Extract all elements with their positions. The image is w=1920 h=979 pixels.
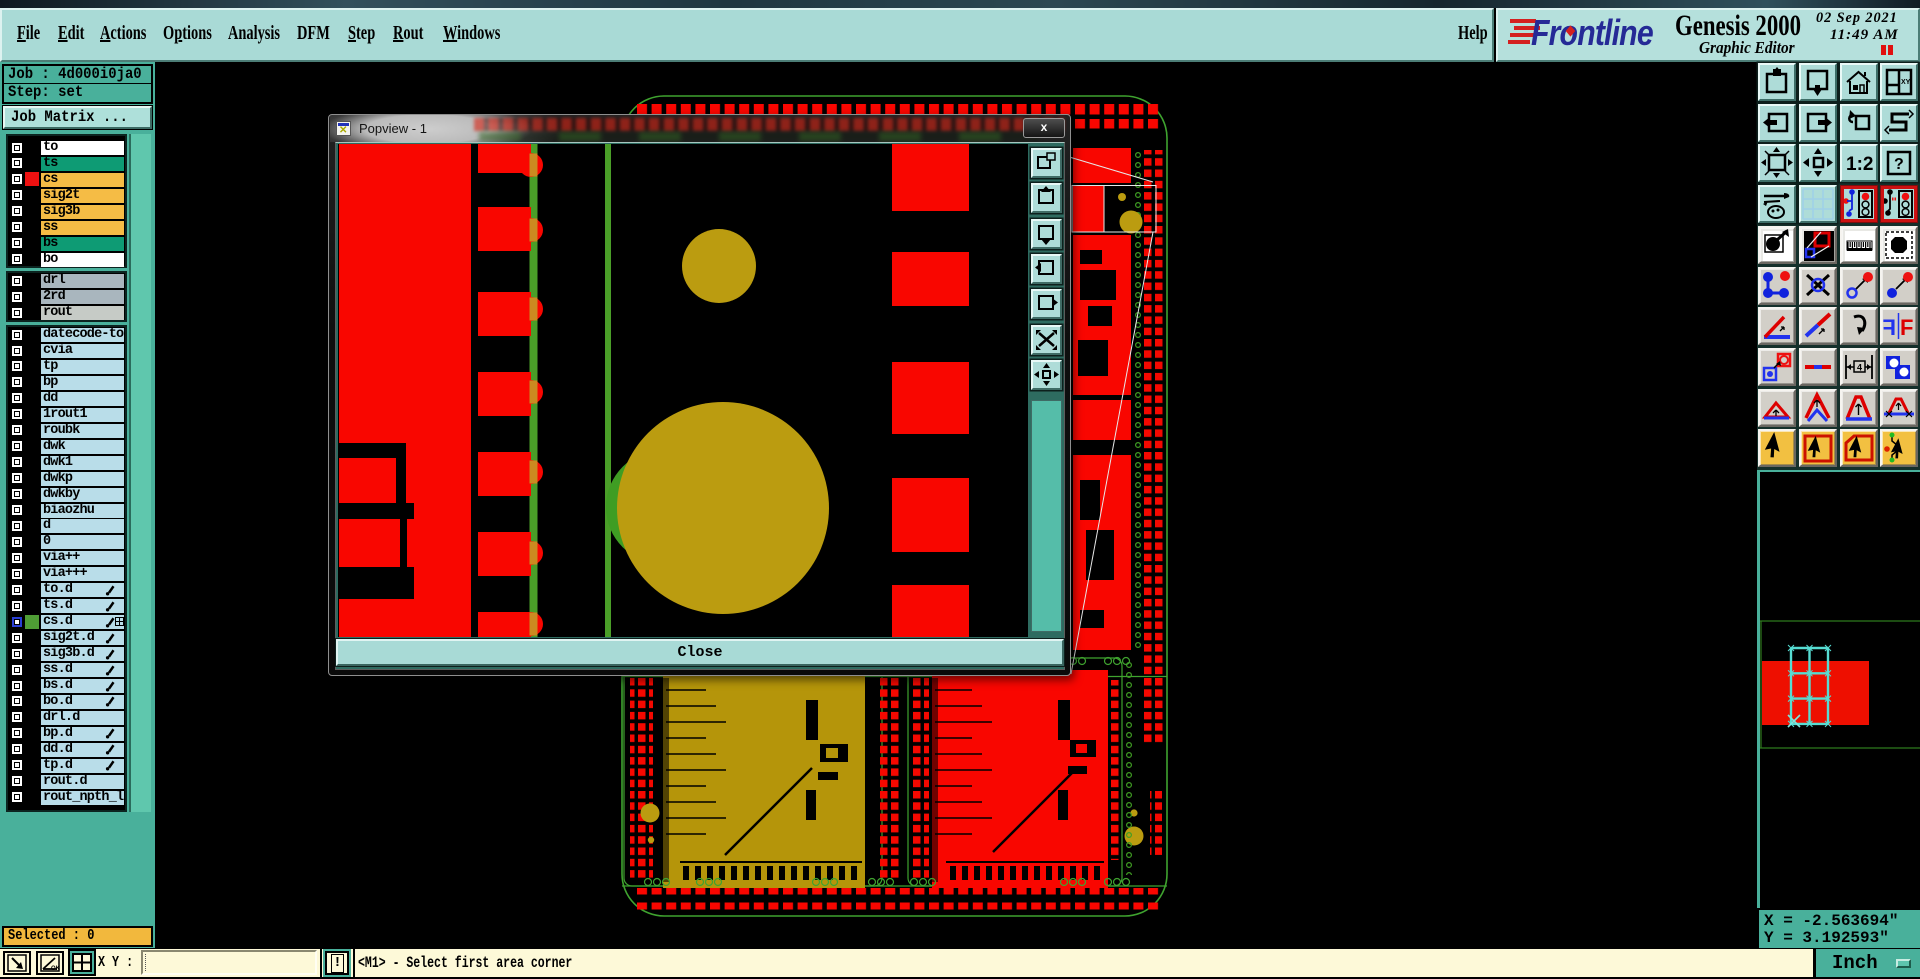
svg-text:F: F	[1883, 315, 1896, 340]
svg-text:1:2: 1:2	[1846, 154, 1873, 175]
svg-text:?: ?	[1894, 156, 1904, 173]
svg-text:XY: XY	[1901, 79, 1911, 86]
svg-text:4: 4	[1857, 362, 1862, 372]
svg-text:OK: OK	[51, 966, 61, 972]
svg-text:F: F	[1900, 315, 1913, 340]
